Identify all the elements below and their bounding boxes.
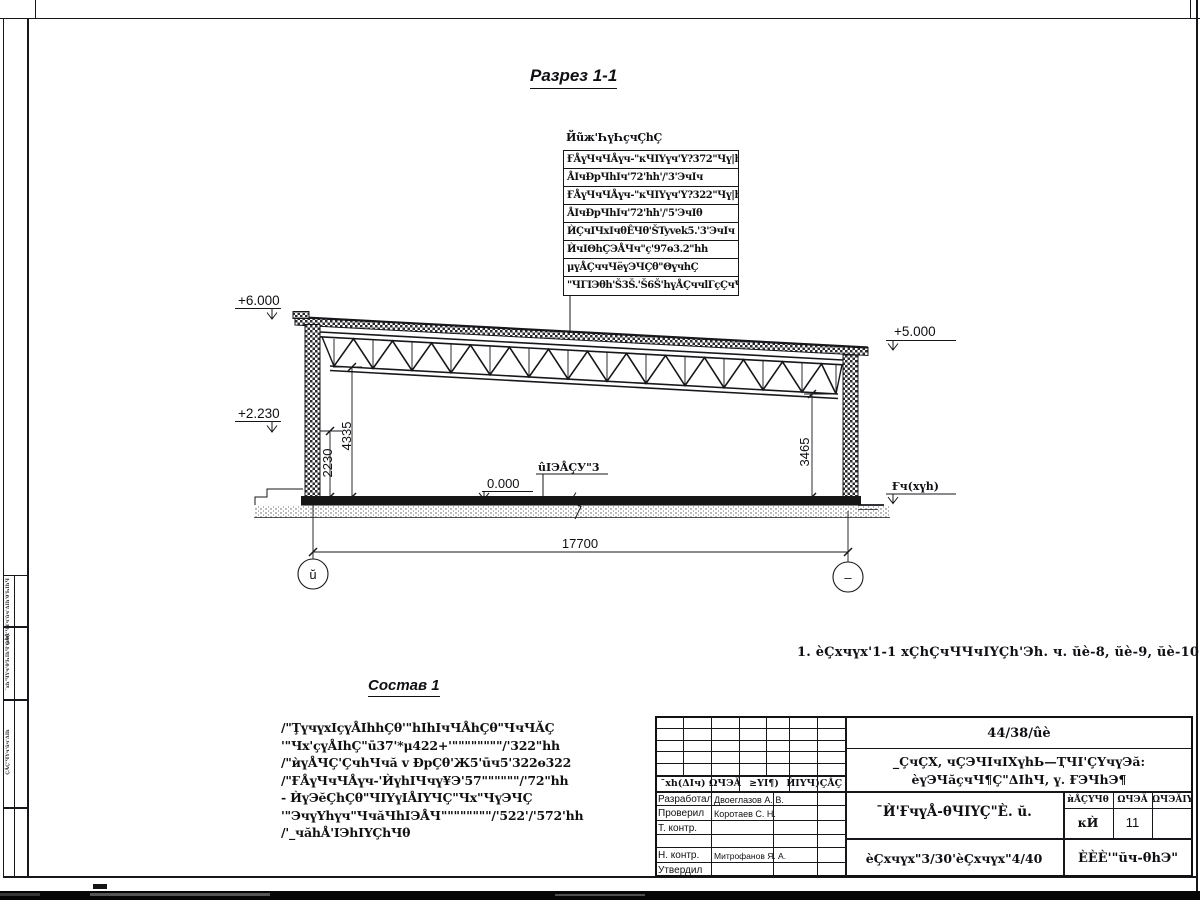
callout-row: ҒÅүЧчЧÅүч-"кЧIYүч'Y?372"Чү|h5.	[564, 151, 738, 169]
dim-4335: 4335	[339, 396, 353, 476]
composition-line: /"ŢүчүхIҫүÅIhhÇθ'"hIhIчЧÅhÇθ"ЧчЧĂÇ	[281, 719, 711, 737]
tb-project-line1: _ÇчÇХ, чÇЭЧIчIХүhЬ—ҬЧI'ÇYчүЭă:	[845, 752, 1193, 770]
callout-row: ÅIчĐрЧhIч'72'hh'/'5'ЭчIθ	[564, 205, 738, 223]
tb-header-col: ¯хh(ΔIч)	[655, 777, 711, 790]
tb-company: ÈÈÈ'"ŭч-θhЭ"	[1063, 848, 1193, 868]
tb-sheets-total	[1152, 812, 1193, 832]
margin-inner-line	[14, 575, 15, 877]
composition-line: - ЍүЭĕÇhÇθ"ЧIYүIÅIYЧÇ"Чх"ЧүЭЧÇ	[281, 789, 711, 807]
drawing-title: Разрез 1-1	[530, 66, 617, 89]
scan-smudge	[0, 893, 40, 896]
callout-row: "ЧΓIЭθh'Š3Š.'Š6Š'hүÅÇччlГҫÇчЧЧ+	[564, 277, 738, 295]
general-note: 1. èÇхчүх'1-1 хÇhÇчЧЧчIYÇh'Эh. ч. ŭè-8, …	[797, 645, 1200, 660]
tb-name: Двоеглазов А. В.	[714, 795, 784, 805]
frame-tick-top-left	[35, 0, 36, 18]
frame-tick-top-right	[1190, 0, 1191, 18]
callout-header: Йũж'ҺүҺҫчÇhÇ	[566, 131, 662, 144]
elevation-zero: 0.000	[487, 476, 520, 491]
tb-name: Митрофанов Я. А.	[714, 851, 786, 861]
tb-role: Утвердил	[658, 865, 702, 876]
tb-role: Проверил	[658, 808, 704, 819]
callout-row: ҒÅүЧчЧÅүч-"кЧIYүч'Y?322"Чү|h5.	[564, 187, 738, 205]
elevation-plus2230: +2.230	[238, 406, 280, 421]
left-wall	[305, 325, 320, 499]
titleblock-line	[1063, 808, 1193, 809]
titleblock-line	[655, 763, 845, 764]
composition-line: /"ҒÅүЧчЧÅүч-'ЍүhIЧчү¥Э'57""""""/'72"hh	[281, 772, 711, 790]
titleblock-line	[766, 716, 767, 775]
tb-header-col: ЍIYЧ)	[789, 777, 817, 790]
tb-project-line2: èүЭЧăҫчЧ¶Ç"ΔIhЧ, ү. ҒЭЧhЭ¶	[845, 770, 1193, 788]
callout-row: ЍчIΘhÇЭÅЧч"ҫ'97ө3.2"hh	[564, 241, 738, 259]
scan-smudge	[555, 894, 645, 896]
drawing-sheet: ѝθÅ'ЧYч'ûч'ΔIh'θ'ҺIhЧ ¯хh'ЧYч'θ'ҺIhЧ'ÇÅÇ…	[0, 0, 1200, 900]
ground-level-label: Ғч(хүh)	[892, 480, 939, 493]
axis-circles	[298, 559, 863, 592]
tb-role: Разработал	[658, 794, 712, 805]
roof-composition-callout: ҒÅүЧчЧÅүч-"кЧIYүч'Y?372"Чү|h5. ÅIчĐрЧhIч…	[563, 150, 739, 296]
titleblock-line	[655, 820, 845, 821]
callout-row: ЍÇчIЧхIчθÊЧθ'ŠTyvek5.'3'ЭчIч	[564, 223, 738, 241]
margin-side-text: ÇÅÇ'ЧYч'ûч'ΔIh	[4, 702, 12, 802]
titleblock-line	[655, 740, 845, 741]
tb-header-col: ÇÅÇ	[817, 777, 845, 790]
callout-row: μүÅÇччЧёүЭЧÇθ"ΘүчhÇ	[564, 259, 738, 277]
tb-sheet-title: ¯Ѝ'ҒчүÅ-θЧIYÇ"È. ŭ.	[845, 800, 1063, 824]
tb-header-col: ΩЧЭĂ	[711, 777, 739, 790]
elevation-plus5: +5.000	[894, 324, 936, 339]
titleblock-line	[655, 805, 845, 806]
tb-doc-number: 44/38/ûè	[845, 722, 1193, 744]
composition-line: /"ѝүÅЧÇ'ÇчhЧчă v ĐрÇθ'Ж5'ūч5'322ө322	[281, 754, 711, 772]
scan-mark	[93, 884, 107, 889]
roof-truss	[320, 332, 843, 399]
composition-line: '"Чх'ҫүÅIhÇ"ū37'*μ422+'""""""""/'322"hh	[281, 737, 711, 755]
tb-stage-value: кЍ	[1063, 812, 1113, 832]
tb-header-col: ≥YI¶)	[739, 777, 789, 790]
dim-2230: 2230	[320, 423, 334, 503]
dim-3465: 3465	[797, 412, 811, 492]
roof-deck	[293, 312, 868, 356]
tb-sheet-subtitle: èÇхчүх"3/30'èÇхчүх"4/40	[845, 848, 1063, 868]
tb-sheets-header: ΩЧЭĂIY	[1152, 793, 1193, 806]
scan-smudge	[90, 893, 270, 896]
callout-row: ÅIчĐрЧhIч'72'hh'/'3'ЭчIч	[564, 169, 738, 187]
axis-label-right: –	[833, 562, 863, 592]
tb-stage-header: ѝÅÇYЧθ	[1063, 793, 1113, 806]
entry-steps	[255, 489, 303, 505]
composition-line: /'_чăhÅ'IЭhIYÇhЧθ	[281, 824, 711, 842]
titleblock-line	[655, 834, 845, 835]
frame-line-right	[1196, 0, 1198, 891]
frame-line-top	[0, 18, 1200, 19]
margin-divider	[3, 699, 27, 701]
composition-list: /"ŢүчүхIҫүÅIhhÇθ'"hIhIчЧÅhÇθ"ЧчЧĂÇ '"Чх'…	[281, 719, 711, 842]
composition-line: '"ЭчүYhүч"ЧчăЧhIЭÅЧ""""""""/'522'/'572'h…	[281, 807, 711, 825]
margin-side-text: ¯хh'ЧYч'θ'ҺIhЧ'ÇÅÇ	[4, 630, 12, 694]
titleblock-line	[655, 751, 845, 752]
tb-role: Н. контр.	[658, 850, 699, 861]
tb-name: Коротаев С. Н.	[714, 809, 776, 819]
margin-divider	[3, 807, 27, 809]
titleblock-line	[845, 748, 1193, 749]
slab-break-symbol	[570, 493, 581, 520]
frame-line-left-main	[27, 18, 29, 877]
titleblock-line	[655, 728, 845, 729]
titleblock-line	[655, 847, 845, 848]
tb-role: Т. контр.	[658, 823, 697, 834]
dim-span-17700: 17700	[540, 536, 620, 551]
tb-sheet-header: ΩЧЭĂ	[1113, 793, 1152, 806]
floor-callout-label: ûIЭÅÇУ"3	[538, 461, 600, 474]
titleblock-line	[683, 716, 684, 775]
titleblock-line	[845, 838, 1193, 840]
right-wall	[843, 355, 858, 498]
elevation-plus6: +6.000	[238, 293, 280, 308]
titleblock-line	[655, 862, 845, 863]
composition-title: Состав 1	[368, 677, 440, 697]
floor-slab	[254, 489, 890, 519]
tb-sheet-number: 11	[1113, 812, 1152, 832]
axis-label-left: ŭ	[298, 559, 328, 589]
